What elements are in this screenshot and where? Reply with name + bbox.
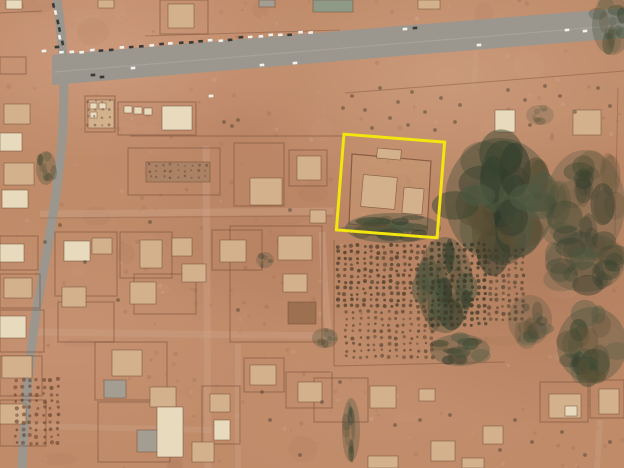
building [298,382,322,402]
scrub-tree [268,418,272,422]
building [288,302,316,324]
vehicle [109,48,114,51]
scene-svg [0,0,624,468]
scrub-tree [453,120,457,124]
dirt-road [36,332,334,336]
building [0,316,26,338]
building [4,163,34,185]
building [565,406,577,416]
building [112,350,142,376]
scrub-tree [43,240,47,244]
vehicle [179,41,184,44]
scrub-tree [448,413,452,417]
building [144,108,152,115]
building [157,407,183,457]
vehicle [413,27,418,30]
vehicle [69,50,74,53]
vehicle [298,31,303,34]
vehicle [565,29,570,32]
scrub-tree [58,223,62,227]
vehicle [248,35,253,38]
vegetation-cluster [256,252,274,268]
vehicle [278,33,283,36]
scrub-tree [558,94,562,98]
vehicle [42,50,47,53]
scrub-tree [530,440,534,444]
building [310,210,326,223]
scrub-tree [410,90,414,94]
building [250,178,282,205]
vehicle [91,74,96,77]
building [2,190,28,208]
vehicle [99,49,104,52]
building [370,386,396,408]
building [162,106,192,130]
vegetation-cluster [430,332,491,366]
scrub-tree [423,110,427,114]
scrub-tree [523,98,527,102]
vehicle [209,95,214,98]
building [4,104,30,124]
scrub-tree [406,123,410,127]
wall-line [334,362,505,366]
building [90,103,97,109]
scrub-tree [583,453,587,457]
vehicle [79,51,84,54]
building [214,420,230,440]
building [64,241,90,261]
scrub-tree [83,260,87,264]
vehicle [139,45,144,48]
vehicle [198,40,203,43]
building [418,0,440,9]
building [140,240,162,268]
scrub-tree [433,128,437,132]
vehicle [131,67,136,70]
dirt-road [322,232,330,342]
scrub-tree [506,88,510,92]
building [6,0,22,9]
scrub-tree [378,86,382,90]
building [278,236,312,260]
vehicle [168,42,173,45]
building [462,458,484,468]
scrub-tree [298,453,302,457]
dirt-road [597,420,600,468]
building [172,238,192,256]
scrub-tree [608,104,612,108]
vehicle [55,46,60,49]
vehicle [308,31,313,34]
building [220,240,246,262]
satellite-image [0,0,624,468]
building [283,274,307,292]
vegetation-cluster [342,398,360,463]
vehicle [218,39,223,42]
scrub-tree [573,110,577,114]
orchard-tree-grid [344,309,435,359]
building [495,110,515,132]
vegetation-cluster [312,328,338,348]
building [92,238,112,254]
scrub-tree [370,126,374,130]
vehicle [403,28,408,31]
scrub-tree [458,103,462,107]
building [297,156,321,180]
building [402,187,424,215]
scrub-tree [388,116,392,120]
vehicle [208,39,213,42]
vehicle [228,38,233,41]
scrub-tree [230,124,234,128]
building [130,282,156,304]
building [483,426,503,444]
building [361,175,398,210]
scrub-tree [222,120,226,124]
scrub-tree [393,423,397,427]
vehicle [477,44,482,47]
vehicle [149,44,154,47]
building [573,110,601,135]
building [313,0,353,12]
building [431,441,455,461]
vehicle [119,46,124,49]
vehicle [129,46,134,49]
dirt-road [206,146,208,468]
vehicle [90,49,95,52]
compound-wall [0,57,26,74]
building [182,264,206,282]
scrub-tree [236,308,240,312]
vehicle [258,35,263,38]
building [150,387,176,407]
building [259,0,275,7]
scrub-tree [560,430,564,434]
scrub-tree [396,100,400,104]
vehicle [100,76,105,79]
vehicle [159,43,164,46]
building [168,4,194,28]
building [104,380,126,398]
building [0,244,24,262]
scrub-tree [513,418,517,422]
scrub-tree [596,86,600,90]
scrub-tree [236,118,240,122]
scrub-tree [116,298,120,302]
scrub-tree [363,108,367,112]
scrub-tree [543,84,547,88]
vehicle [583,30,588,33]
building [377,148,402,160]
scrub-tree [148,220,152,224]
vegetation-cluster [589,0,624,55]
scrub-tree [608,440,612,444]
building [134,107,142,114]
vehicle [268,33,273,36]
building [0,133,22,151]
vehicle [189,41,194,44]
scrub-tree [260,390,264,394]
building [2,356,32,378]
vehicle [293,62,298,65]
building [419,389,435,401]
scrub-tree [528,123,532,127]
vegetation-cluster [36,151,57,185]
scrub-tree [498,448,502,452]
scrub-tree [350,94,354,98]
scrub-tree [341,106,345,110]
building [368,456,398,468]
scrub-trees [43,84,612,457]
building [210,394,230,412]
vehicle [239,36,244,39]
vegetation-cluster [556,300,624,387]
building [98,0,114,8]
vehicle [260,64,265,67]
building [192,442,214,462]
building [4,278,32,298]
wall-line [345,71,624,93]
vehicle [287,33,292,36]
vegetation-cluster [526,105,554,125]
scrub-tree [288,208,292,212]
scrub-tree [320,400,324,404]
building [599,389,619,414]
scrub-tree [418,418,422,422]
building [250,365,276,385]
vehicle [59,51,64,54]
scrub-tree [439,96,443,100]
building [124,106,132,113]
building [62,287,86,307]
scrub-tree [338,380,342,384]
